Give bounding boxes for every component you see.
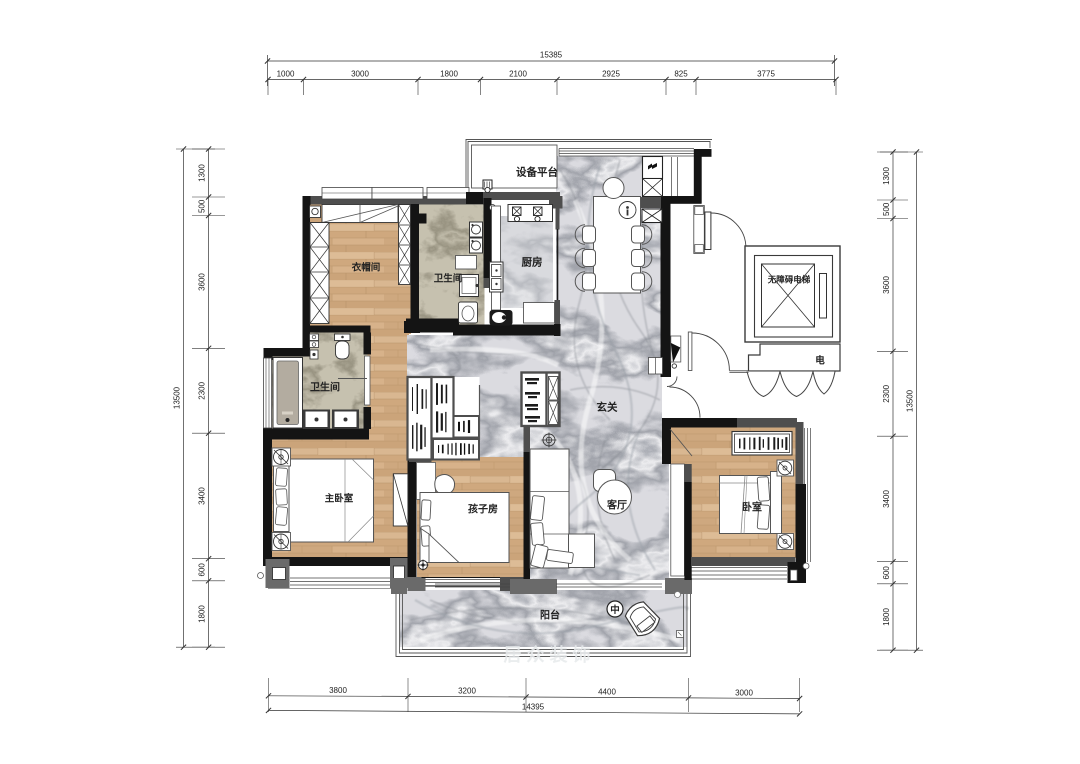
svg-text:中: 中 (610, 604, 620, 616)
svg-text:卫生间: 卫生间 (310, 381, 340, 394)
svg-text:卫生间: 卫生间 (434, 273, 463, 285)
svg-text:设备平台: 设备平台 (516, 166, 558, 179)
svg-text:3400: 3400 (882, 490, 891, 508)
svg-text:阳台: 阳台 (540, 609, 560, 622)
svg-text:1300: 1300 (882, 167, 891, 185)
svg-text:居 众 装 饰: 居 众 装 饰 (503, 644, 590, 665)
svg-text:3000: 3000 (735, 688, 753, 697)
svg-text:1300: 1300 (198, 164, 207, 182)
svg-text:2300: 2300 (198, 381, 207, 399)
svg-text:衣帽间: 衣帽间 (352, 262, 381, 274)
svg-text:主卧室: 主卧室 (325, 493, 354, 505)
svg-text:3800: 3800 (329, 686, 347, 695)
svg-text:1800: 1800 (882, 608, 891, 626)
svg-text:4400: 4400 (598, 688, 616, 697)
svg-text:2925: 2925 (602, 70, 620, 79)
svg-text:2300: 2300 (882, 384, 891, 402)
svg-text:厨房: 厨房 (522, 256, 543, 269)
svg-text:3200: 3200 (458, 687, 476, 696)
svg-text:1800: 1800 (440, 70, 458, 79)
svg-text:无障碍电梯: 无障碍电梯 (767, 275, 811, 285)
svg-text:1000: 1000 (277, 70, 295, 79)
svg-text:13500: 13500 (173, 386, 182, 409)
svg-text:600: 600 (198, 563, 207, 577)
svg-text:15385: 15385 (540, 51, 563, 60)
svg-text:1800: 1800 (198, 605, 207, 623)
svg-text:14395: 14395 (522, 703, 545, 712)
svg-text:3775: 3775 (757, 70, 775, 79)
svg-text:3000: 3000 (351, 70, 369, 79)
svg-text:825: 825 (674, 70, 688, 79)
svg-text:13500: 13500 (906, 389, 915, 412)
svg-text:3400: 3400 (198, 487, 207, 505)
svg-text:500: 500 (882, 202, 891, 216)
svg-text:3600: 3600 (198, 273, 207, 291)
svg-text:孩子房: 孩子房 (468, 503, 498, 516)
svg-text:600: 600 (882, 566, 891, 580)
svg-text:2100: 2100 (509, 70, 527, 79)
svg-text:500: 500 (198, 199, 207, 213)
svg-text:电: 电 (815, 355, 825, 367)
svg-text:客厅: 客厅 (606, 499, 627, 512)
svg-text:卧室: 卧室 (742, 501, 762, 514)
svg-text:3600: 3600 (882, 276, 891, 294)
svg-text:玄关: 玄关 (597, 401, 618, 414)
